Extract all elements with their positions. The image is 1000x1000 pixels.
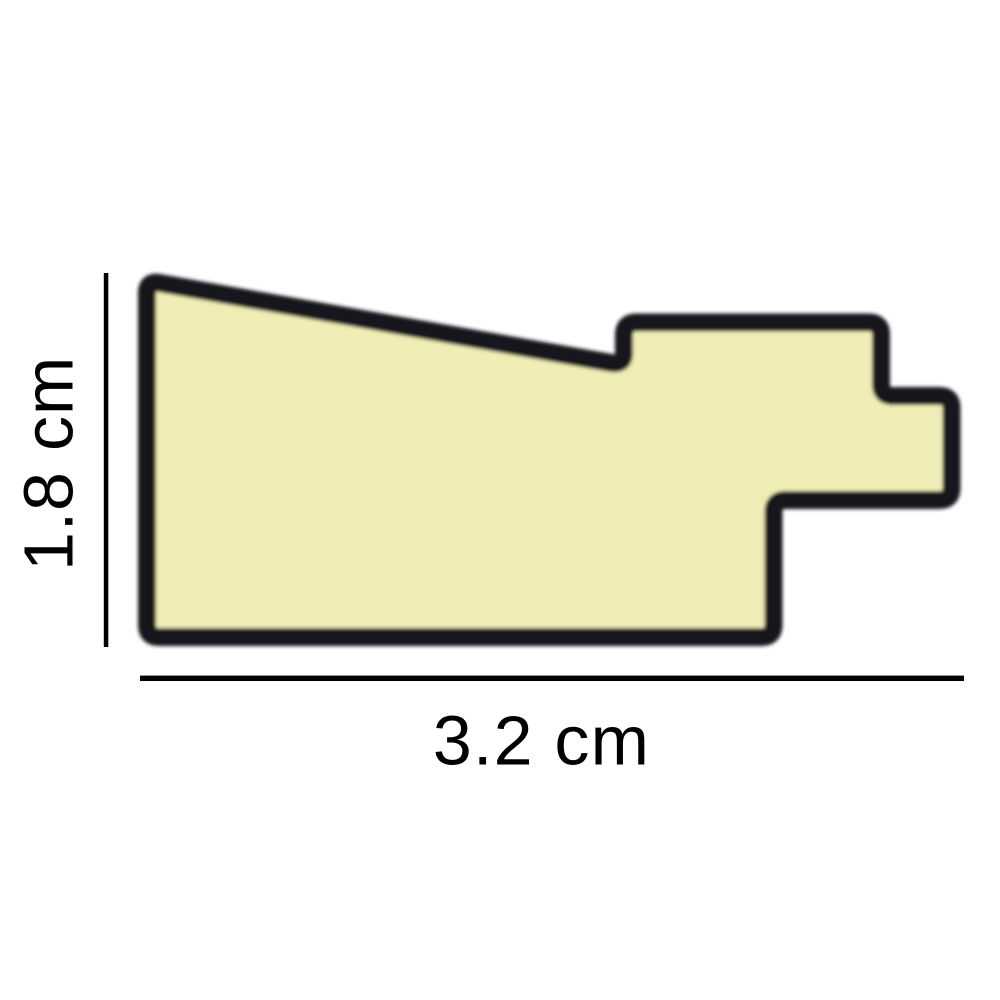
svg-text:3.2 cm: 3.2 cm [433, 702, 650, 780]
svg-text:1.8 cm: 1.8 cm [10, 356, 88, 571]
